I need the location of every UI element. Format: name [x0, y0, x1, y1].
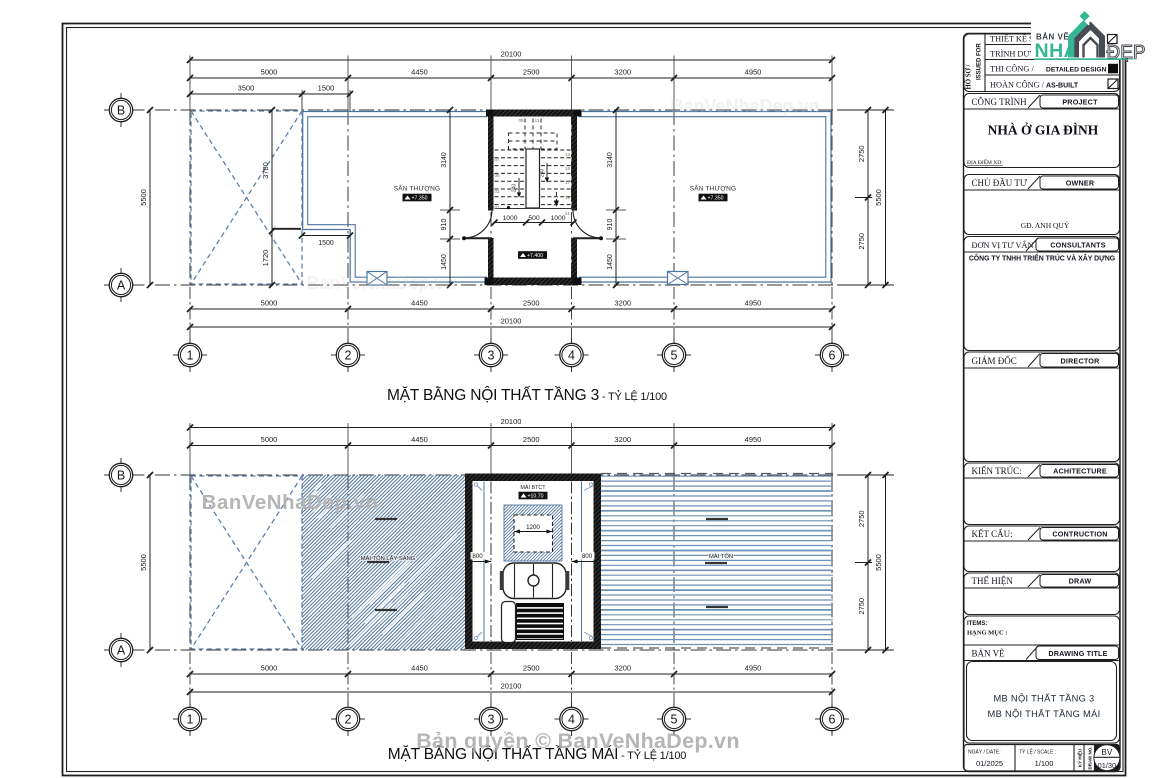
svg-text:4450: 4450 [411, 664, 428, 673]
svg-text:DETAILED DESIGN: DETAILED DESIGN [1046, 67, 1107, 74]
svg-text:5500: 5500 [874, 554, 883, 571]
svg-text:TỶ LỆ / SCALE :: TỶ LỆ / SCALE : [1019, 748, 1056, 756]
svg-text:2750: 2750 [857, 233, 866, 250]
svg-text:1000: 1000 [502, 215, 517, 222]
svg-text:A: A [117, 278, 126, 292]
svg-text:20100: 20100 [501, 317, 522, 326]
svg-text:4450: 4450 [411, 68, 428, 77]
svg-text:CÔNG TY TNHH TRIỂN TRÚC VÀ XÂY: CÔNG TY TNHH TRIỂN TRÚC VÀ XÂY DỰNG [969, 254, 1115, 263]
svg-text:+7.350: +7.350 [411, 196, 427, 202]
svg-text:ĐẸP: ĐẸP [1107, 43, 1146, 64]
svg-text:Bản quyền © BanVeNhaDep.vn: Bản quyền © BanVeNhaDep.vn [416, 729, 740, 753]
svg-text:+7.400: +7.400 [527, 253, 543, 259]
svg-text:500: 500 [528, 215, 540, 222]
svg-text:BanVeNhaDep.vn: BanVeNhaDep.vn [306, 273, 455, 293]
svg-text:AS-BUILT: AS-BUILT [1046, 83, 1079, 90]
svg-text:BanVeNhaDep.vn: BanVeNhaDep.vn [670, 96, 819, 116]
svg-text:1200: 1200 [526, 524, 540, 531]
svg-text:B: B [117, 468, 125, 482]
svg-text:4950: 4950 [745, 435, 762, 444]
svg-text:2750: 2750 [857, 598, 866, 615]
svg-text:DRAW NO.: DRAW NO. [1088, 747, 1093, 770]
svg-text:20100: 20100 [501, 50, 522, 59]
svg-text:MB NỘI THẤT TẦNG 3: MB NỘI THẤT TẦNG 3 [994, 694, 1095, 704]
svg-text:A: A [117, 643, 126, 657]
svg-text:NHÀ Ở GIA ĐÌNH: NHÀ Ở GIA ĐÌNH [988, 123, 1099, 138]
svg-text:NGÀY / DATE:: NGÀY / DATE: [968, 749, 1001, 756]
svg-text:2750: 2750 [857, 145, 866, 162]
svg-text:HOÀN CÔNG /: HOÀN CÔNG / [990, 80, 1045, 90]
svg-text:11: 11 [535, 118, 540, 123]
svg-text:ĐỊA ĐIỂM XD:: ĐỊA ĐIỂM XD: [967, 158, 1003, 166]
svg-text:ISSUED FOR: ISSUED FOR [977, 43, 983, 80]
svg-text:BanVeNhaDep.vn: BanVeNhaDep.vn [202, 491, 379, 514]
svg-text:15: 15 [565, 166, 571, 171]
svg-text:CONSULTANTS: CONSULTANTS [1050, 241, 1105, 250]
svg-text:1450: 1450 [441, 254, 448, 270]
svg-text:4950: 4950 [745, 664, 762, 673]
svg-text:1450: 1450 [607, 254, 614, 270]
svg-text:1720: 1720 [261, 250, 270, 267]
svg-text:2: 2 [345, 712, 352, 726]
svg-text:B: B [117, 103, 125, 117]
svg-text:CÔNG TRÌNH: CÔNG TRÌNH [972, 97, 1028, 107]
svg-text:910: 910 [607, 219, 614, 231]
svg-text:4: 4 [568, 712, 575, 726]
svg-text:3200: 3200 [614, 664, 631, 673]
svg-text:240: 240 [540, 169, 546, 178]
svg-text:3200: 3200 [614, 435, 631, 444]
svg-text:5000: 5000 [261, 664, 278, 673]
svg-text:ĐƠN VỊ TƯ VẤN: ĐƠN VỊ TƯ VẤN [972, 240, 1034, 250]
svg-text:5500: 5500 [139, 554, 148, 571]
svg-text:1: 1 [187, 348, 194, 362]
svg-text:6: 6 [829, 348, 836, 362]
svg-text:2500: 2500 [523, 435, 540, 444]
svg-text:CONTRUCTION: CONTRUCTION [1052, 530, 1107, 539]
svg-text:5000: 5000 [261, 299, 278, 308]
svg-text:1500: 1500 [318, 240, 334, 247]
svg-text:CHỦ ĐẦU TƯ: CHỦ ĐẦU TƯ [972, 178, 1027, 188]
svg-text:HỒ SƠ /: HỒ SƠ / [965, 64, 973, 89]
svg-text:SÂN THƯỢNG: SÂN THƯỢNG [690, 184, 737, 193]
svg-text:3200: 3200 [614, 299, 631, 308]
svg-text:1: 1 [187, 712, 194, 726]
svg-text:1/100: 1/100 [1035, 759, 1054, 768]
svg-text:800: 800 [472, 553, 483, 560]
svg-text:MB NỘI THẤT TẦNG MÁI: MB NỘI THẤT TẦNG MÁI [988, 709, 1101, 719]
svg-text:01: 01 [494, 205, 500, 210]
svg-text:BV: BV [1101, 748, 1112, 757]
svg-text:3500: 3500 [238, 84, 255, 93]
svg-text:4: 4 [568, 348, 575, 362]
svg-text:KẾT CẤU:: KẾT CẤU: [972, 529, 1013, 539]
svg-text:01/2025: 01/2025 [976, 759, 1003, 768]
svg-text:3780: 3780 [261, 162, 270, 179]
svg-text:2500: 2500 [523, 299, 540, 308]
svg-text:THI CÔNG /: THI CÔNG / [990, 64, 1034, 74]
svg-text:DRAWING TITLE: DRAWING TITLE [1048, 649, 1107, 658]
svg-text:19: 19 [565, 195, 571, 200]
svg-text:01/30: 01/30 [1098, 761, 1117, 770]
svg-text:THỂ HIỆN: THỂ HIỆN [972, 576, 1014, 586]
svg-text:5000: 5000 [261, 435, 278, 444]
svg-text:20100: 20100 [501, 417, 522, 426]
svg-text:PROJECT: PROJECT [1062, 98, 1098, 107]
svg-text:800: 800 [582, 553, 593, 560]
svg-text:4950: 4950 [745, 68, 762, 77]
svg-text:2: 2 [345, 348, 352, 362]
svg-text:1000: 1000 [550, 215, 565, 222]
svg-text:3: 3 [488, 348, 495, 362]
svg-text:DRAW: DRAW [1069, 577, 1092, 586]
svg-text:DIRECTOR: DIRECTOR [1060, 357, 1100, 366]
svg-text:4450: 4450 [411, 435, 428, 444]
svg-text:5: 5 [671, 348, 678, 362]
svg-text:ACHITECTURE: ACHITECTURE [1053, 467, 1107, 476]
svg-text:3140: 3140 [607, 152, 614, 168]
svg-text:5000: 5000 [261, 68, 278, 77]
svg-text:3: 3 [488, 712, 495, 726]
svg-text:5500: 5500 [139, 189, 148, 206]
svg-text:KÝ HIỆU: KÝ HIỆU [1076, 749, 1083, 767]
svg-text:OWNER: OWNER [1066, 179, 1095, 188]
svg-text:03: 03 [494, 189, 500, 194]
svg-text:2500: 2500 [523, 664, 540, 673]
svg-text:05: 05 [494, 173, 500, 178]
svg-text:2500: 2500 [523, 68, 540, 77]
svg-text:1500: 1500 [318, 84, 335, 93]
svg-text:20100: 20100 [501, 682, 522, 691]
svg-text:4450: 4450 [411, 299, 428, 308]
svg-text:09: 09 [518, 118, 524, 123]
svg-text:4950: 4950 [745, 299, 762, 308]
svg-text:910: 910 [441, 219, 448, 231]
svg-text:ITEMS:: ITEMS: [967, 621, 987, 627]
svg-text:2750: 2750 [857, 510, 866, 527]
svg-text:GĐ. ANH QUÝ: GĐ. ANH QUÝ [1021, 220, 1070, 230]
svg-text:BẢN VẼ: BẢN VẼ [972, 649, 1006, 659]
svg-text:3200: 3200 [614, 68, 631, 77]
svg-text:+10.70: +10.70 [527, 494, 543, 500]
svg-text:13: 13 [565, 152, 571, 157]
svg-text:07: 07 [494, 157, 500, 162]
svg-text:KIẾN TRÚC:: KIẾN TRÚC: [972, 466, 1022, 476]
svg-text:MÁI BTCT: MÁI BTCT [520, 484, 546, 491]
svg-text:17: 17 [565, 180, 571, 185]
svg-text:MÁI TÔN: MÁI TÔN [709, 553, 733, 560]
svg-text:3140: 3140 [441, 152, 448, 168]
svg-text:240: 240 [512, 184, 518, 193]
svg-text:21: 21 [565, 211, 571, 216]
svg-text:5: 5 [671, 712, 678, 726]
svg-text:5500: 5500 [874, 189, 883, 206]
svg-text:6: 6 [829, 712, 836, 726]
svg-text:GIÁM ĐỐC: GIÁM ĐỐC [972, 356, 1017, 366]
svg-text:SÂN THƯỢNG: SÂN THƯỢNG [394, 184, 441, 193]
svg-text:HẠNG MỤC :: HẠNG MỤC : [967, 630, 1007, 637]
svg-text:+7.350: +7.350 [707, 196, 723, 202]
